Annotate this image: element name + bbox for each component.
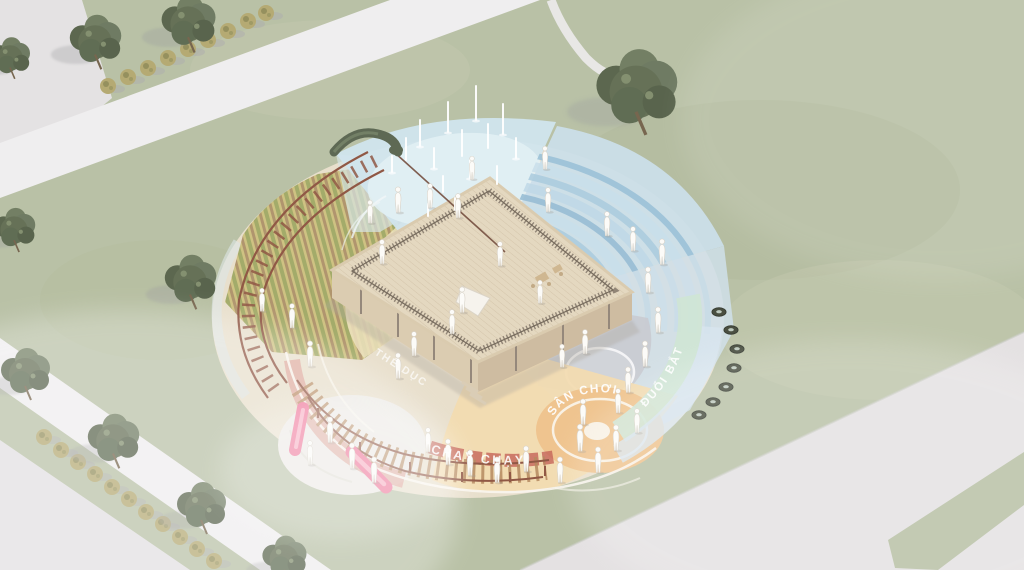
- haze-sandpit: [220, 400, 460, 540]
- site-plan-svg: SÂN CHƠI CHẠY CHẠY ĐUỔI BẮT THỂ DỤC: [0, 0, 1024, 570]
- haze-overlay: [0, 0, 1024, 570]
- architectural-site-render: SÂN CHƠI CHẠY CHẠY ĐUỔI BẮT THỂ DỤC: [0, 0, 1024, 570]
